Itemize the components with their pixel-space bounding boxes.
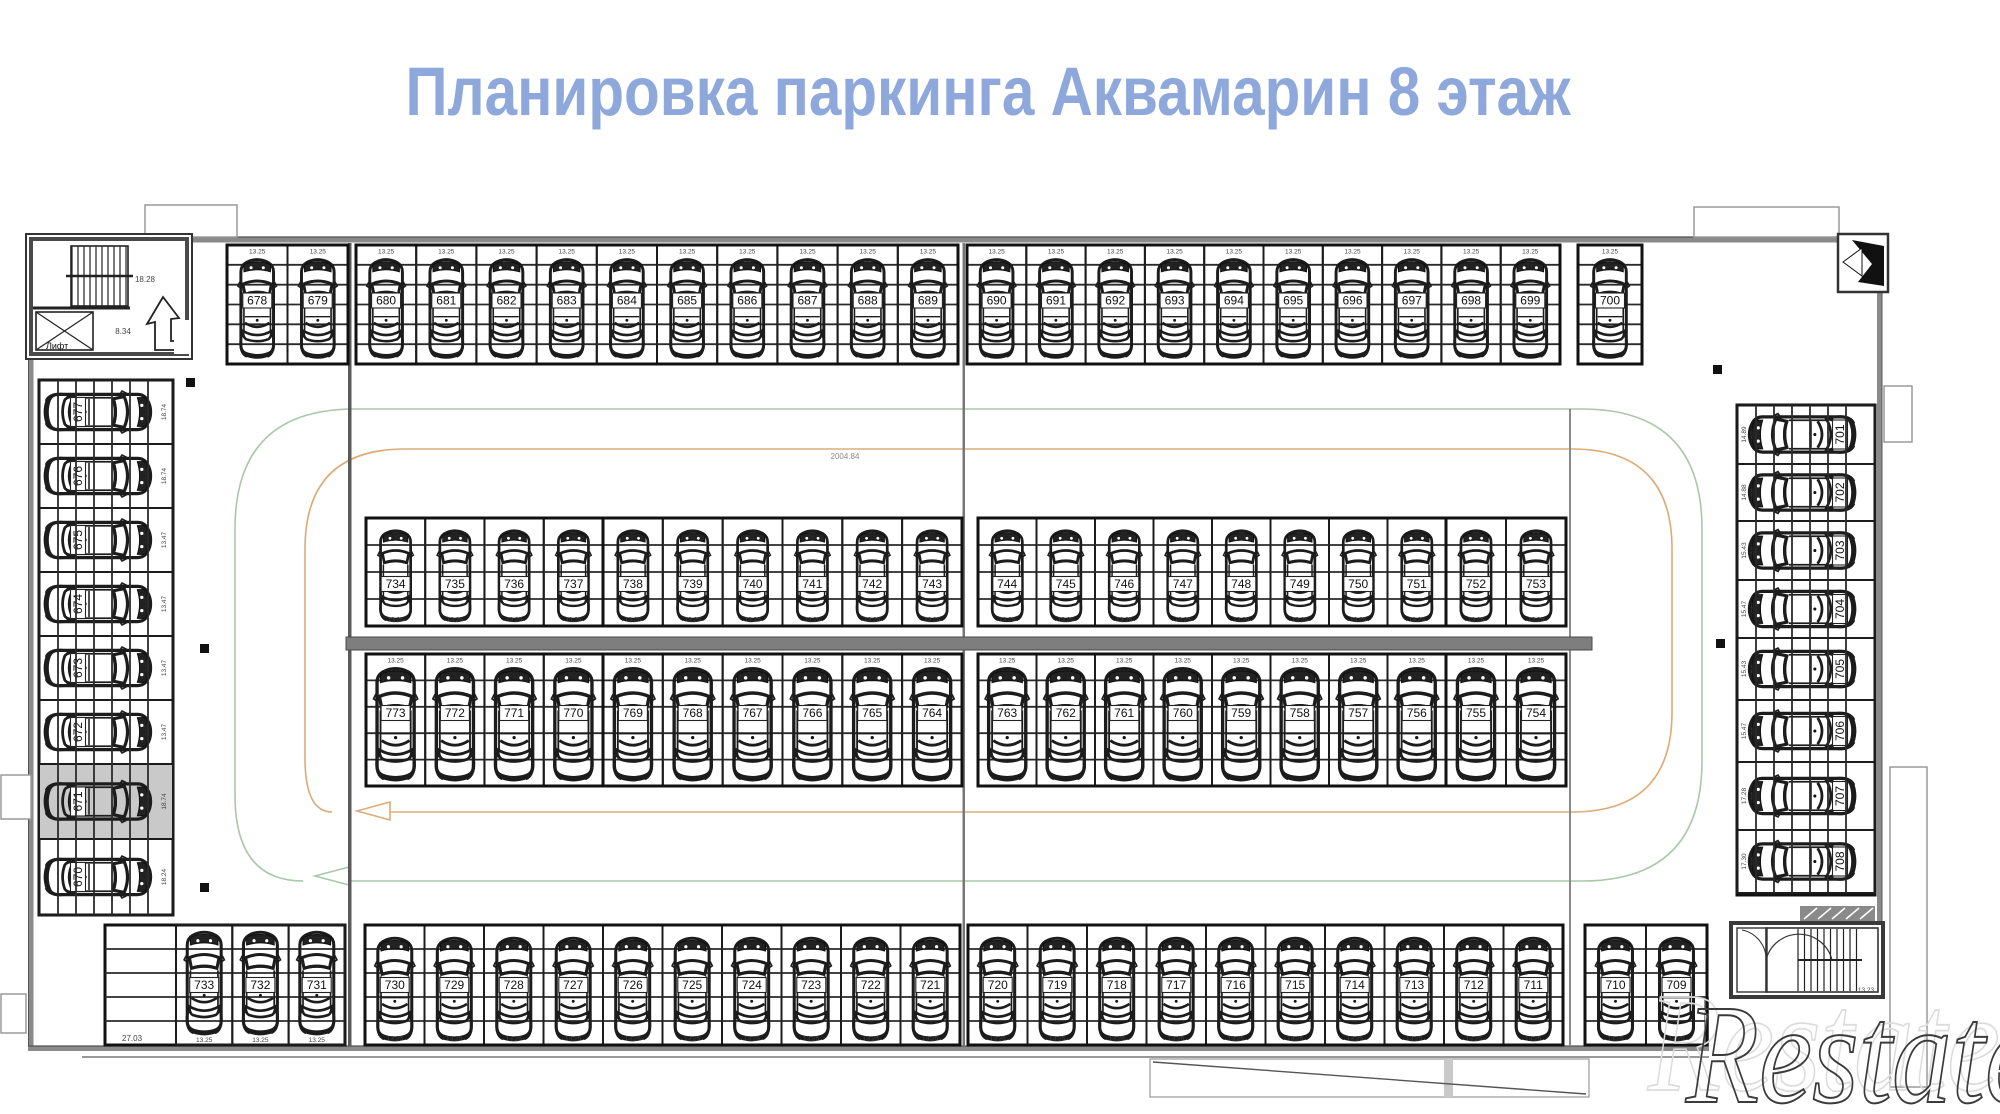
- svg-text:13.25: 13.25: [1350, 617, 1367, 624]
- svg-text:15.47: 15.47: [1741, 722, 1748, 739]
- svg-text:696: 696: [1342, 294, 1362, 308]
- svg-text:770: 770: [563, 706, 583, 720]
- svg-text:757: 757: [1348, 706, 1368, 720]
- svg-text:727: 727: [563, 978, 583, 992]
- svg-text:13.47: 13.47: [161, 723, 168, 740]
- svg-text:712: 712: [1464, 978, 1484, 992]
- svg-text:13.25: 13.25: [310, 249, 327, 256]
- svg-text:13.25: 13.25: [1528, 658, 1545, 665]
- svg-text:2004.84: 2004.84: [831, 452, 860, 461]
- svg-text:13.25: 13.25: [864, 617, 881, 624]
- svg-text:13.25: 13.25: [804, 617, 821, 624]
- svg-text:18.74: 18.74: [161, 403, 168, 420]
- svg-text:13.25: 13.25: [739, 249, 756, 256]
- svg-text:13.47: 13.47: [161, 595, 168, 612]
- svg-text:13.25: 13.25: [999, 658, 1016, 665]
- svg-text:751: 751: [1407, 577, 1427, 591]
- svg-text:13.25: 13.25: [625, 1036, 642, 1043]
- svg-text:749: 749: [1290, 577, 1310, 591]
- svg-text:13.25: 13.25: [559, 249, 576, 256]
- svg-text:13.25: 13.25: [1409, 617, 1426, 624]
- svg-text:13.25: 13.25: [1404, 249, 1421, 256]
- svg-text:13.25: 13.25: [387, 1036, 404, 1043]
- svg-text:711: 711: [1524, 978, 1543, 992]
- svg-text:677: 677: [71, 402, 85, 422]
- svg-text:13.25: 13.25: [922, 1036, 939, 1043]
- svg-text:729: 729: [444, 978, 464, 992]
- svg-text:13.25: 13.25: [1468, 658, 1485, 665]
- svg-text:679: 679: [308, 294, 328, 308]
- svg-text:13.25: 13.25: [1350, 658, 1367, 665]
- svg-text:728: 728: [504, 978, 524, 992]
- svg-text:747: 747: [1173, 577, 1193, 591]
- svg-text:13.47: 13.47: [161, 531, 168, 548]
- svg-text:726: 726: [623, 978, 643, 992]
- svg-text:13.25: 13.25: [1116, 658, 1133, 665]
- svg-text:755: 755: [1466, 706, 1486, 720]
- svg-text:13.25: 13.25: [506, 617, 523, 624]
- svg-text:13.25: 13.25: [988, 249, 1005, 256]
- svg-text:735: 735: [445, 577, 465, 591]
- svg-text:718: 718: [1107, 978, 1127, 992]
- svg-text:721: 721: [920, 978, 940, 992]
- svg-text:700: 700: [1600, 294, 1620, 308]
- svg-text:13.25: 13.25: [744, 1036, 761, 1043]
- svg-text:699: 699: [1520, 294, 1540, 308]
- svg-text:13.25: 13.25: [1049, 1036, 1066, 1043]
- svg-text:13.25: 13.25: [625, 617, 642, 624]
- svg-text:680: 680: [376, 294, 396, 308]
- svg-text:670: 670: [71, 867, 85, 887]
- svg-text:698: 698: [1461, 294, 1481, 308]
- svg-text:13.25: 13.25: [378, 249, 395, 256]
- svg-text:769: 769: [623, 706, 643, 720]
- svg-text:13.25: 13.25: [625, 658, 642, 665]
- svg-text:675: 675: [71, 530, 85, 550]
- svg-text:13.25: 13.25: [864, 658, 881, 665]
- svg-text:737: 737: [563, 577, 583, 591]
- svg-text:18.24: 18.24: [161, 868, 168, 885]
- svg-text:688: 688: [858, 294, 878, 308]
- svg-text:759: 759: [1231, 706, 1251, 720]
- svg-text:13.25: 13.25: [387, 658, 404, 665]
- svg-text:740: 740: [743, 577, 763, 591]
- svg-text:13.25: 13.25: [924, 658, 941, 665]
- svg-text:686: 686: [737, 294, 757, 308]
- svg-text:671: 671: [71, 791, 85, 811]
- svg-text:13.25: 13.25: [1525, 1036, 1542, 1043]
- svg-text:13.25: 13.25: [1406, 1036, 1423, 1043]
- svg-text:13.25: 13.25: [863, 1036, 880, 1043]
- svg-text:745: 745: [1056, 577, 1076, 591]
- svg-text:13.25: 13.25: [446, 1036, 463, 1043]
- svg-text:730: 730: [385, 978, 405, 992]
- svg-text:724: 724: [742, 978, 762, 992]
- svg-text:13.25: 13.25: [1058, 617, 1075, 624]
- svg-text:719: 719: [1047, 978, 1067, 992]
- svg-text:18.74: 18.74: [161, 793, 168, 810]
- svg-text:694: 694: [1224, 294, 1244, 308]
- svg-text:15.43: 15.43: [1741, 660, 1748, 677]
- svg-text:13.25: 13.25: [619, 249, 636, 256]
- svg-text:13.25: 13.25: [924, 617, 941, 624]
- svg-text:672: 672: [71, 722, 85, 742]
- svg-text:753: 753: [1526, 577, 1546, 591]
- svg-text:13.25: 13.25: [447, 658, 464, 665]
- svg-text:15.47: 15.47: [1741, 600, 1748, 617]
- svg-text:13.25: 13.25: [1168, 1036, 1185, 1043]
- svg-text:695: 695: [1283, 294, 1303, 308]
- svg-text:13.25: 13.25: [506, 1036, 523, 1043]
- svg-text:762: 762: [1056, 706, 1076, 720]
- svg-text:733: 733: [194, 978, 214, 992]
- svg-text:Планировка паркинга Аквамарин: Планировка паркинга Аквамарин 8 этаж: [406, 53, 1572, 130]
- svg-text:13.25: 13.25: [1602, 249, 1619, 256]
- svg-text:685: 685: [677, 294, 697, 308]
- svg-text:13.25: 13.25: [1528, 617, 1545, 624]
- svg-text:13.25: 13.25: [1058, 658, 1075, 665]
- svg-text:767: 767: [743, 706, 763, 720]
- svg-text:13.25: 13.25: [799, 249, 816, 256]
- svg-text:17.28: 17.28: [1741, 787, 1748, 804]
- svg-text:689: 689: [918, 294, 938, 308]
- svg-text:766: 766: [802, 706, 822, 720]
- svg-text:13.25: 13.25: [1116, 617, 1133, 624]
- svg-text:13.25: 13.25: [679, 249, 696, 256]
- svg-text:693: 693: [1165, 294, 1185, 308]
- svg-text:13.25: 13.25: [1228, 1036, 1245, 1043]
- svg-text:720: 720: [988, 978, 1008, 992]
- svg-text:684: 684: [617, 294, 637, 308]
- svg-text:13.25: 13.25: [744, 617, 761, 624]
- svg-text:18.28: 18.28: [135, 275, 156, 284]
- svg-text:14.89: 14.89: [1741, 426, 1748, 443]
- svg-text:13.25: 13.25: [1522, 249, 1539, 256]
- svg-text:13.25: 13.25: [309, 1037, 326, 1044]
- svg-text:716: 716: [1226, 978, 1246, 992]
- svg-text:687: 687: [797, 294, 817, 308]
- svg-text:713: 713: [1404, 978, 1424, 992]
- svg-text:13.25: 13.25: [565, 617, 582, 624]
- svg-text:738: 738: [623, 577, 643, 591]
- svg-text:681: 681: [436, 294, 456, 308]
- svg-text:13.25: 13.25: [990, 1036, 1007, 1043]
- svg-text:13.25: 13.25: [1233, 658, 1250, 665]
- svg-text:13.25: 13.25: [1175, 658, 1192, 665]
- svg-text:13.25: 13.25: [1233, 617, 1250, 624]
- svg-text:14.88: 14.88: [1741, 484, 1748, 501]
- svg-text:772: 772: [445, 706, 465, 720]
- svg-text:13.25: 13.25: [249, 249, 266, 256]
- svg-text:13.25: 13.25: [1466, 1036, 1483, 1043]
- svg-text:13.25: 13.25: [744, 658, 761, 665]
- svg-text:13.25: 13.25: [498, 249, 515, 256]
- svg-text:18.74: 18.74: [161, 467, 168, 484]
- svg-text:768: 768: [683, 706, 703, 720]
- svg-text:752: 752: [1466, 577, 1486, 591]
- svg-text:731: 731: [307, 978, 327, 992]
- svg-text:13.25: 13.25: [1287, 1036, 1304, 1043]
- svg-text:715: 715: [1285, 978, 1305, 992]
- svg-text:13.25: 13.25: [803, 1036, 820, 1043]
- svg-text:8.34: 8.34: [115, 327, 131, 336]
- svg-text:710: 710: [1605, 978, 1625, 992]
- svg-text:13.25: 13.25: [804, 658, 821, 665]
- svg-text:761: 761: [1114, 706, 1134, 720]
- svg-text:674: 674: [71, 594, 85, 614]
- svg-text:17.30: 17.30: [1741, 853, 1748, 870]
- svg-text:13.25: 13.25: [684, 1036, 701, 1043]
- svg-text:692: 692: [1105, 294, 1125, 308]
- svg-text:683: 683: [557, 294, 577, 308]
- svg-text:756: 756: [1407, 706, 1427, 720]
- svg-text:13.47: 13.47: [161, 659, 168, 676]
- svg-text:13.25: 13.25: [1463, 249, 1480, 256]
- svg-text:744: 744: [997, 577, 1017, 591]
- svg-text:758: 758: [1290, 706, 1310, 720]
- svg-text:13.25: 13.25: [1468, 617, 1485, 624]
- svg-text:13.25: 13.25: [565, 1036, 582, 1043]
- svg-text:725: 725: [682, 978, 702, 992]
- svg-text:13.25: 13.25: [1344, 249, 1361, 256]
- svg-text:Лифт: Лифт: [46, 341, 68, 351]
- svg-text:27.03: 27.03: [122, 1034, 143, 1043]
- svg-text:13.25: 13.25: [387, 617, 404, 624]
- svg-text:13.25: 13.25: [438, 249, 455, 256]
- svg-text:732: 732: [250, 978, 270, 992]
- svg-text:760: 760: [1173, 706, 1193, 720]
- svg-text:13.25: 13.25: [447, 617, 464, 624]
- svg-text:765: 765: [862, 706, 882, 720]
- svg-text:13.25: 13.25: [1607, 1036, 1624, 1043]
- svg-text:771: 771: [504, 706, 524, 720]
- svg-text:13.25: 13.25: [1048, 249, 1065, 256]
- svg-text:13.25: 13.25: [860, 249, 877, 256]
- svg-text:13.25: 13.25: [1292, 658, 1309, 665]
- svg-text:13.25: 13.25: [506, 658, 523, 665]
- svg-text:734: 734: [386, 577, 406, 591]
- svg-text:13.25: 13.25: [999, 617, 1016, 624]
- svg-text:13.25: 13.25: [1292, 617, 1309, 624]
- svg-text:739: 739: [683, 577, 703, 591]
- svg-text:741: 741: [802, 577, 822, 591]
- svg-text:15.43: 15.43: [1741, 542, 1748, 559]
- svg-text:13.25: 13.25: [685, 617, 702, 624]
- svg-text:750: 750: [1348, 577, 1368, 591]
- svg-text:736: 736: [504, 577, 524, 591]
- svg-text:13.25: 13.25: [1347, 1036, 1364, 1043]
- svg-text:682: 682: [496, 294, 516, 308]
- svg-text:13.25: 13.25: [1409, 658, 1426, 665]
- svg-text:13.25: 13.25: [685, 658, 702, 665]
- svg-text:754: 754: [1526, 706, 1546, 720]
- svg-text:13.25: 13.25: [920, 249, 937, 256]
- svg-text:13.25: 13.25: [196, 1037, 213, 1044]
- svg-text:13.25: 13.25: [565, 658, 582, 665]
- svg-text:Restate: Restate: [1685, 975, 2000, 1114]
- svg-text:13.25: 13.25: [1285, 249, 1302, 256]
- svg-text:678: 678: [247, 294, 267, 308]
- svg-text:13.25: 13.25: [1109, 1036, 1126, 1043]
- svg-text:746: 746: [1114, 577, 1134, 591]
- svg-text:13.25: 13.25: [1175, 617, 1192, 624]
- svg-text:723: 723: [801, 978, 821, 992]
- svg-text:13.25: 13.25: [1226, 249, 1243, 256]
- svg-text:673: 673: [71, 658, 85, 678]
- svg-text:13.25: 13.25: [1107, 249, 1124, 256]
- svg-text:773: 773: [386, 706, 406, 720]
- svg-text:742: 742: [862, 577, 882, 591]
- svg-text:764: 764: [922, 706, 942, 720]
- svg-text:13.25: 13.25: [1166, 249, 1183, 256]
- svg-text:714: 714: [1345, 978, 1365, 992]
- svg-text:743: 743: [922, 577, 942, 591]
- svg-text:697: 697: [1402, 294, 1422, 308]
- svg-text:722: 722: [861, 978, 881, 992]
- svg-text:717: 717: [1166, 978, 1186, 992]
- svg-text:748: 748: [1231, 577, 1251, 591]
- svg-text:676: 676: [71, 466, 85, 486]
- svg-text:13.25: 13.25: [252, 1037, 269, 1044]
- svg-text:763: 763: [997, 706, 1017, 720]
- svg-text:690: 690: [987, 294, 1007, 308]
- svg-text:691: 691: [1046, 294, 1066, 308]
